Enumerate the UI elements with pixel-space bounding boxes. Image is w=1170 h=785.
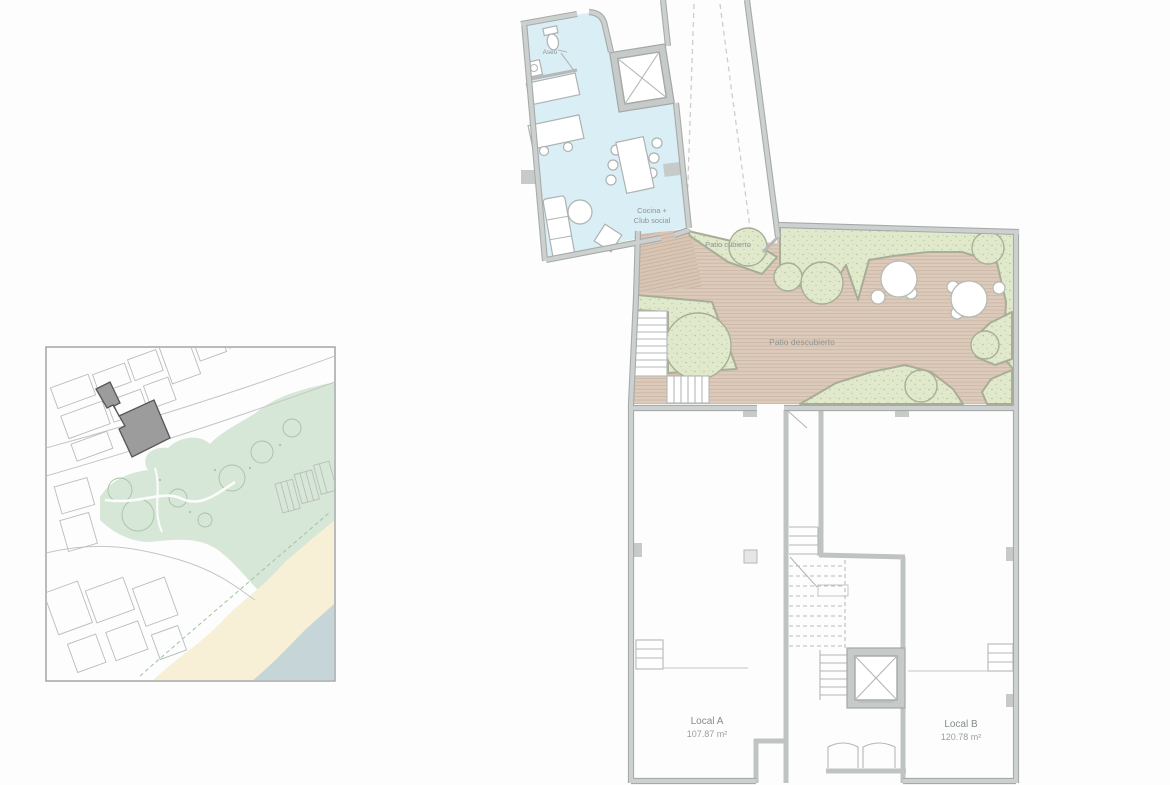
- tree-bush: [971, 331, 999, 359]
- wall-notch: [1006, 694, 1014, 707]
- entrance-doors: [828, 743, 895, 768]
- tree-bush: [801, 262, 843, 304]
- unit-area-local-b: 120.78 m²: [941, 732, 982, 742]
- floor-plan-drawing: Aseo Cocina + Club social Patio cubierto…: [0, 0, 1170, 785]
- ramp-guide-dashed: [720, 4, 750, 228]
- wall-notch: [634, 543, 642, 557]
- tree-bush: [972, 232, 1004, 264]
- room-label-patio-cubierto: Patio cubierto: [705, 240, 751, 249]
- stairs-flight-1: [789, 527, 818, 556]
- unit-label-local-b: Local B: [944, 719, 978, 730]
- wall-notch: [521, 170, 536, 184]
- patio-area: [632, 225, 1018, 404]
- column: [744, 550, 757, 563]
- tree-bush: [774, 263, 802, 291]
- unit-label-local-a: Local A: [691, 716, 724, 727]
- room-label-patio-descubierto: Patio descubierto: [769, 337, 835, 347]
- stool: [540, 147, 549, 156]
- unit-area-local-a: 107.87 m²: [687, 729, 728, 739]
- room-label-cocina-line2: Club social: [634, 216, 671, 225]
- location-map: [44, 314, 339, 690]
- room-label-cocina-line1: Cocina +: [637, 206, 667, 215]
- floor-plan-page: Aseo Cocina + Club social Patio cubierto…: [0, 0, 1170, 785]
- stair-break-line: [790, 557, 817, 587]
- local-b-steps: [908, 644, 1013, 671]
- round-table: [568, 200, 592, 224]
- local-a-steps: [636, 640, 748, 669]
- access-ramp: [687, 4, 750, 228]
- tree-bush: [665, 313, 731, 379]
- ramp-guide-dashed: [687, 4, 694, 210]
- door-swing: [788, 411, 807, 428]
- stair-landing: [818, 585, 848, 596]
- room-label-aseo: Aseo: [543, 49, 558, 56]
- stool: [564, 143, 573, 152]
- stairs-flight-2-dashed: [789, 560, 845, 650]
- tree-bush: [905, 370, 937, 402]
- elevator-upper: [610, 44, 675, 112]
- elevator-lower: [847, 648, 905, 708]
- wall-notch: [1006, 547, 1014, 561]
